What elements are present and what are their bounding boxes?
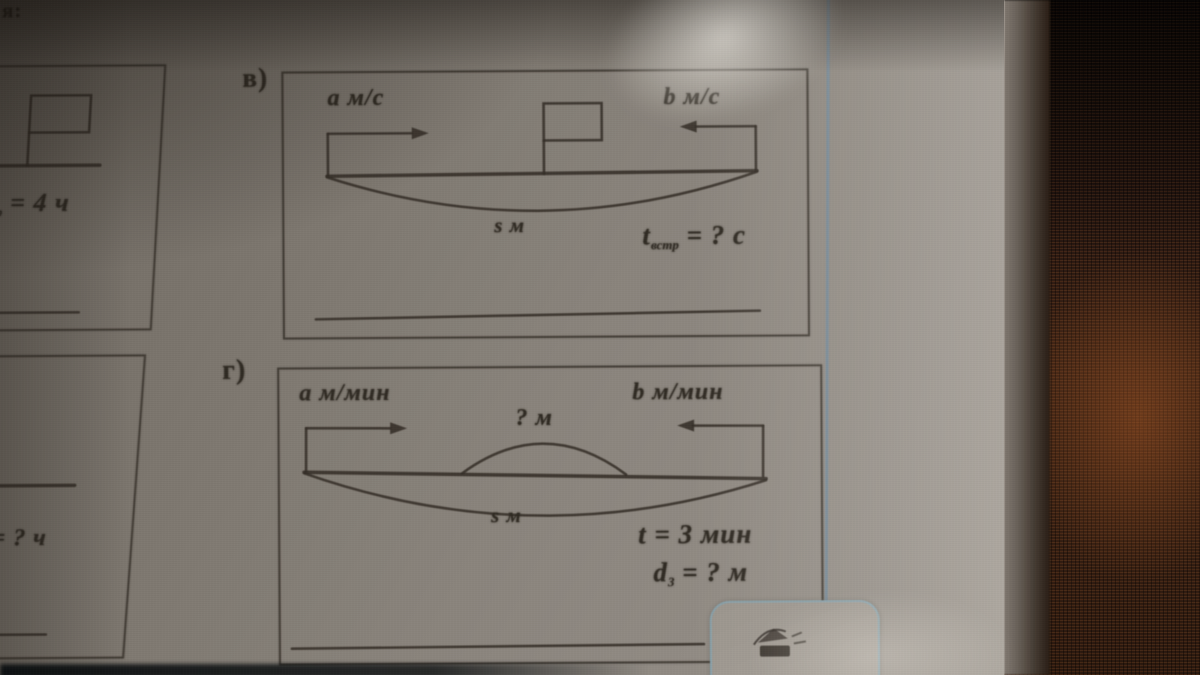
- gap-distance-label: ? м: [515, 405, 553, 432]
- speed-left-label: a м/мин: [299, 380, 390, 407]
- photo-of-workbook-page: я: тр = 4 ч t =: [0, 0, 1200, 675]
- section-label-g: г): [222, 356, 246, 387]
- light-glow-bottom-right: [700, 560, 1030, 675]
- distance-label: s м: [491, 504, 522, 527]
- arrow-right-head: [390, 422, 407, 434]
- gap-arc: [462, 444, 626, 475]
- answer-underline: [292, 644, 704, 649]
- shadow-bottom-edge: [0, 664, 790, 675]
- shadow-left: [0, 0, 130, 675]
